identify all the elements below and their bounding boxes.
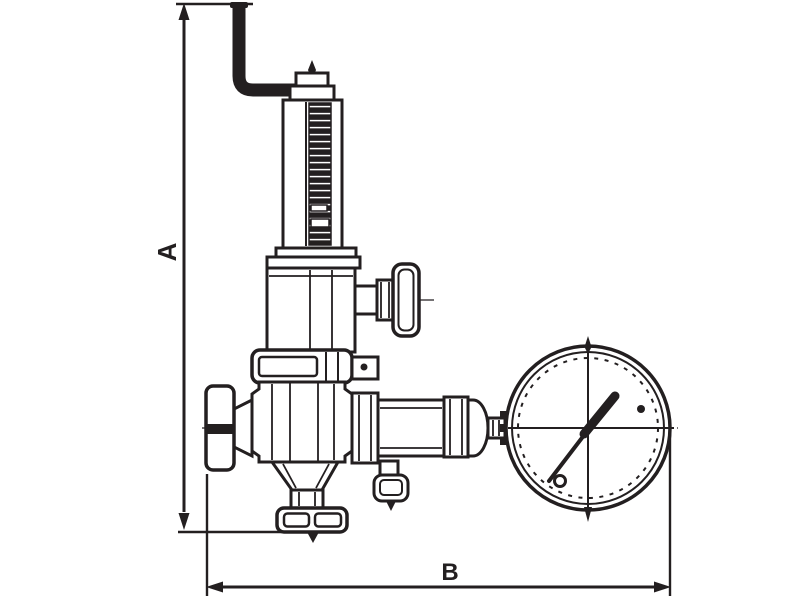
adjuster-stub xyxy=(355,286,377,314)
spring-housing xyxy=(267,100,360,268)
bottom-fitting xyxy=(277,508,347,532)
gauge-crosshair-bottom-tip xyxy=(584,507,592,522)
valve-technical-drawing: A B xyxy=(0,0,800,598)
drawing-svg: A B xyxy=(0,0,800,598)
bottom-tip xyxy=(307,532,319,543)
pipe-end-cap xyxy=(230,2,248,8)
arrow-right-icon xyxy=(654,582,671,593)
valve-body xyxy=(252,382,352,462)
gauge-needle-hub xyxy=(555,476,566,487)
outlet-barrel xyxy=(468,400,488,456)
dimension-a-label: A xyxy=(152,242,182,261)
adjuster-handle-outer xyxy=(393,264,419,336)
bonnet-block xyxy=(267,268,355,352)
gauge-dial-dot xyxy=(637,405,645,413)
outlet-adapter xyxy=(352,393,378,463)
arrow-left-icon xyxy=(206,582,223,593)
drain-fitting xyxy=(374,461,408,511)
valve-top-cap xyxy=(290,60,334,101)
outlet-coupling xyxy=(352,393,505,463)
bottom-stem xyxy=(291,490,323,508)
adjuster-union-nut xyxy=(377,280,393,320)
drain-tip xyxy=(386,501,396,511)
body-outline xyxy=(252,382,352,462)
inlet-connection xyxy=(206,386,252,470)
gland-band xyxy=(252,350,378,383)
gland-side-dot xyxy=(361,364,368,371)
adjusting-handle xyxy=(355,264,419,336)
arrow-down-icon xyxy=(179,513,190,530)
gland-band-window xyxy=(259,357,317,376)
dimension-b-label: B xyxy=(441,559,458,586)
bottom-connection xyxy=(272,462,347,543)
drain-stem xyxy=(380,461,398,475)
arrow-up-icon xyxy=(179,3,190,20)
outlet-union-nut xyxy=(444,397,468,457)
pressure-gauge xyxy=(500,336,674,522)
top-cap-steps xyxy=(290,73,334,101)
valve-bonnet xyxy=(267,268,355,352)
inlet-cap-band xyxy=(208,424,233,434)
housing-flange-steps xyxy=(267,248,360,268)
inlet-neck xyxy=(234,400,252,456)
